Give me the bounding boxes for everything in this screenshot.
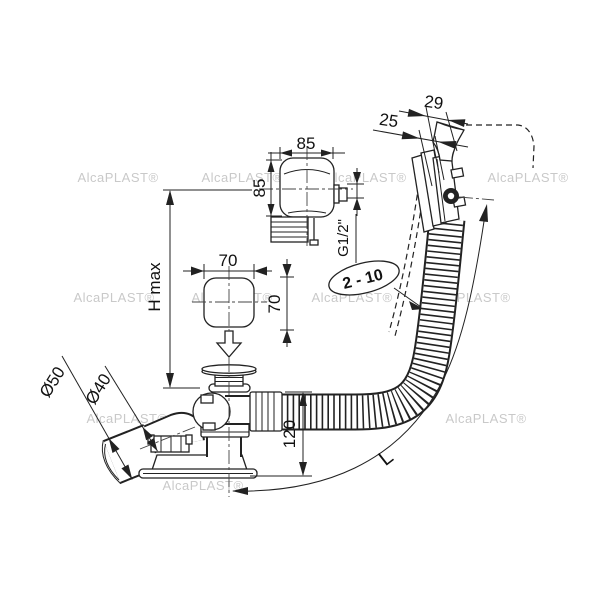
overflow-25-label: 25 (378, 110, 399, 131)
drain-height-label: 120 (280, 420, 299, 448)
knob-width-label: 85 (297, 134, 316, 153)
dimension-knob-width: 85 (268, 134, 345, 159)
watermark: AlcaPLAST® (73, 290, 154, 305)
drawing-svg: AlcaPLAST® AlcaPLAST® AlcaPLAST® AlcaPLA… (0, 0, 600, 600)
hose-union-nut (250, 392, 282, 431)
knob-height-label: 85 (250, 179, 269, 198)
watermark: AlcaPLAST® (445, 411, 526, 426)
corrugated-hose (281, 219, 447, 412)
watermark: AlcaPLAST® (77, 170, 158, 185)
dimension-knob-height: 85 (250, 152, 282, 224)
tub-rim-dashed-line (466, 125, 534, 168)
h-max-label: H max (145, 262, 164, 312)
watermark: AlcaPLAST® (325, 170, 406, 185)
technical-drawing-canvas: AlcaPLAST® AlcaPLAST® AlcaPLAST® AlcaPLA… (0, 0, 600, 600)
knob-side-outlet (334, 185, 339, 203)
dia50-label: Ø50 (36, 363, 69, 400)
watermark: AlcaPLAST® (487, 170, 568, 185)
hose-length-label: L (374, 445, 397, 470)
dimension-small-knob-width: 70 (183, 251, 272, 279)
thread-label: G1/2" (335, 219, 352, 257)
base-skirt (152, 455, 247, 470)
small-knob-height-label: 70 (265, 295, 284, 314)
small-knob-width-label: 70 (219, 251, 238, 270)
watermark: AlcaPLAST® (201, 170, 282, 185)
down-arrow-hollow (217, 331, 241, 357)
dimension-small-knob-height: 70 (265, 259, 294, 347)
dia40-label: Ø40 (82, 370, 115, 407)
knob-threaded-stem (271, 217, 308, 242)
overflow-29-label: 29 (423, 92, 444, 113)
watermark: AlcaPLAST® (162, 478, 243, 493)
